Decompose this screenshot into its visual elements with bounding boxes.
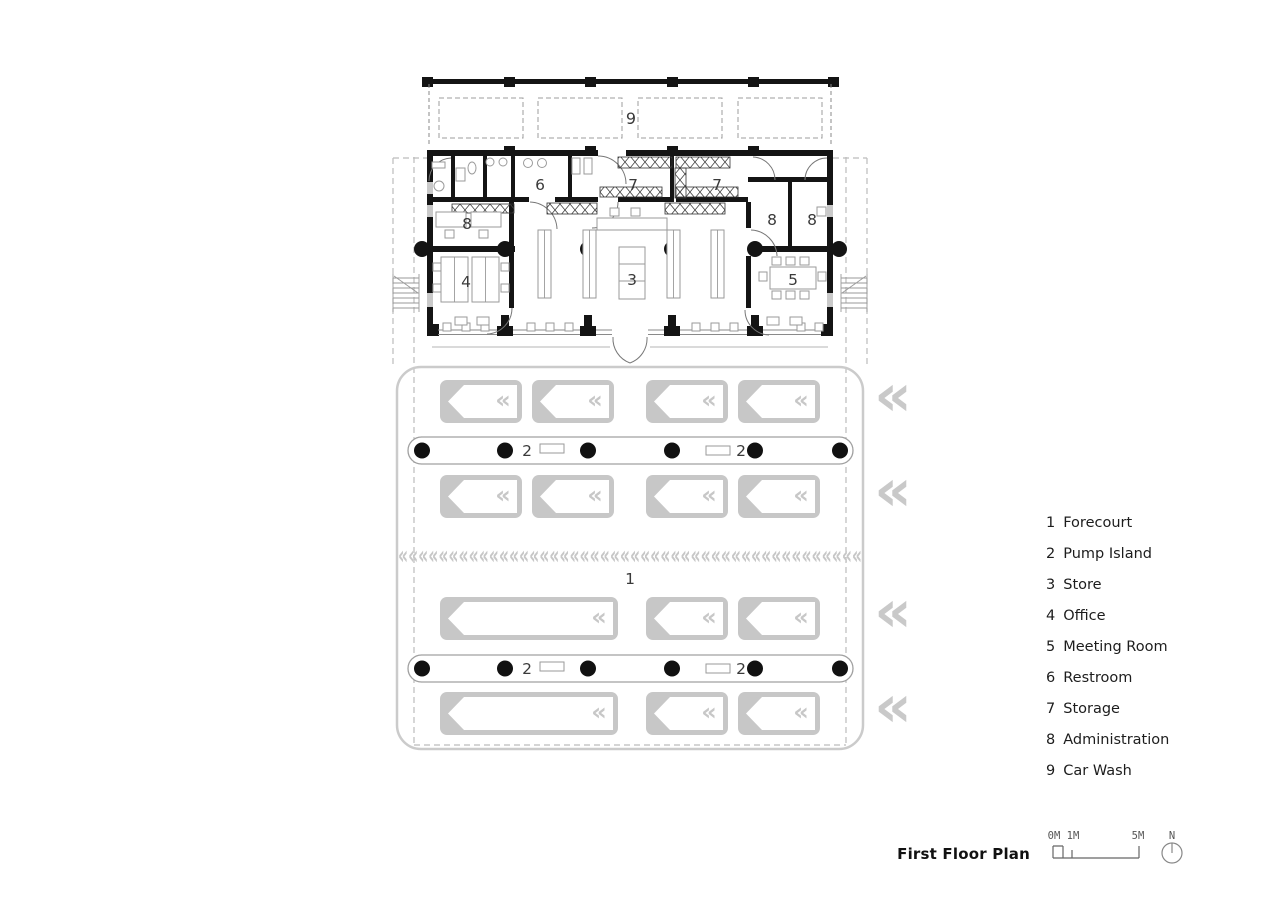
stall-arrow-icon: « xyxy=(701,698,717,726)
dispenser xyxy=(706,664,730,673)
legend-number: 5 xyxy=(1046,639,1055,655)
parking-stall: « xyxy=(646,380,728,423)
parking-stall: « xyxy=(440,597,618,640)
room-label-administration: 8 xyxy=(767,211,777,229)
pump-bollard xyxy=(832,661,848,677)
stall-arrow-icon: « xyxy=(495,386,511,414)
room-label-meeting-room: 5 xyxy=(788,271,798,289)
stall-arrow-icon: « xyxy=(591,603,607,631)
pump-island: 22 xyxy=(408,655,853,682)
pump-bollard xyxy=(497,661,513,677)
car-wash-bay xyxy=(738,98,822,138)
dispenser xyxy=(540,444,564,453)
floor-plan-page: 9 xyxy=(0,0,1280,904)
legend-number: 2 xyxy=(1046,546,1055,562)
legend: 1 Forecourt 2 Pump Island 3 Store 4 Offi… xyxy=(1046,507,1169,786)
parking-stall: « xyxy=(646,597,728,640)
legend-item-pump-island: 2 Pump Island xyxy=(1046,538,1169,569)
north-label: N xyxy=(1169,830,1175,842)
dispenser xyxy=(706,446,730,455)
scale-bar xyxy=(1053,846,1139,858)
column xyxy=(414,241,430,257)
car-wash-bay xyxy=(638,98,722,138)
legend-item-meeting-room: 5 Meeting Room xyxy=(1046,631,1169,662)
stall-arrow-icon: « xyxy=(587,386,603,414)
scale-label-5m: 5M xyxy=(1132,830,1145,842)
pump-bollard xyxy=(414,661,430,677)
stall-arrow-icon: « xyxy=(793,698,809,726)
scale-label-1m: 1M xyxy=(1067,830,1080,842)
legend-item-car-wash: 9 Car Wash xyxy=(1046,755,1169,786)
room-label-restroom: 6 xyxy=(535,176,545,194)
column xyxy=(497,241,513,257)
pump-island: 22 xyxy=(408,437,853,464)
legend-item-forecourt: 1 Forecourt xyxy=(1046,507,1169,538)
scale-label-0m: 0M xyxy=(1048,830,1061,842)
parking-stall: « xyxy=(440,475,522,518)
legend-number: 6 xyxy=(1046,670,1055,686)
room-label-pump-island: 2 xyxy=(736,660,746,678)
legend-item-administration: 8 Administration xyxy=(1046,724,1169,755)
column xyxy=(831,241,847,257)
stall-arrow-icon: « xyxy=(793,603,809,631)
parking-stall: « xyxy=(738,475,820,518)
car-wash-bay xyxy=(439,98,523,138)
car-wash-zone: 9 xyxy=(422,77,839,156)
parking-stall: « xyxy=(738,692,820,735)
entrance-door-leaf xyxy=(630,337,647,363)
legend-number: 8 xyxy=(1046,732,1055,748)
legend-label: Office xyxy=(1063,608,1105,624)
pump-bollard xyxy=(832,443,848,459)
entry-arrow-icon: « xyxy=(874,361,911,429)
stall-arrow-icon: « xyxy=(701,603,717,631)
legend-label: Pump Island xyxy=(1063,546,1152,562)
stall-arrow-icon: « xyxy=(793,386,809,414)
legend-label: Forecourt xyxy=(1063,515,1132,531)
entry-arrow-icon: « xyxy=(874,672,911,740)
pump-bollard xyxy=(580,443,596,459)
legend-number: 3 xyxy=(1046,577,1055,593)
forecourt: «««««««««««««« 2222 ««««««««««««««««««««… xyxy=(397,361,912,749)
column xyxy=(747,241,763,257)
room-label-forecourt: 1 xyxy=(625,570,635,588)
stall-arrow-icon: « xyxy=(793,481,809,509)
stall-arrow-icon: « xyxy=(587,481,603,509)
room-label-pump-island: 2 xyxy=(522,660,532,678)
legend-item-restroom: 6 Restroom xyxy=(1046,662,1169,693)
room-label-administration: 8 xyxy=(462,215,472,233)
legend-label: Restroom xyxy=(1063,670,1132,686)
parking-stall: « xyxy=(532,475,614,518)
plan-title: First Floor Plan xyxy=(830,845,1030,863)
room-label-storage: 7 xyxy=(712,176,722,194)
pump-bollard xyxy=(664,661,680,677)
room-label-pump-island: 2 xyxy=(736,442,746,460)
room-label-office: 4 xyxy=(461,273,471,291)
pump-bollard xyxy=(747,443,763,459)
legend-number: 4 xyxy=(1046,608,1055,624)
legend-number: 9 xyxy=(1046,763,1055,779)
stall-arrow-icon: « xyxy=(701,386,717,414)
entry-arrow-icon: « xyxy=(874,577,911,645)
car-wash-bay xyxy=(538,98,622,138)
legend-label: Administration xyxy=(1063,732,1169,748)
entry-arrow-icon: « xyxy=(874,456,911,524)
legend-label: Meeting Room xyxy=(1063,639,1167,655)
room-label-administration: 8 xyxy=(807,211,817,229)
pump-bollard xyxy=(580,661,596,677)
parking-stall: « xyxy=(738,380,820,423)
stall-arrow-icon: « xyxy=(591,698,607,726)
pump-bollard xyxy=(414,443,430,459)
dispenser xyxy=(540,662,564,671)
pump-bollard xyxy=(664,443,680,459)
stall-arrow-icon: « xyxy=(701,481,717,509)
room-label-pump-island: 2 xyxy=(522,442,532,460)
legend-number: 1 xyxy=(1046,515,1055,531)
legend-label: Car Wash xyxy=(1063,763,1132,779)
entrance-door-leaf xyxy=(613,337,630,363)
traffic-flow-chevrons: ««««««««««««««««««««««««««««««««««««««««… xyxy=(398,541,862,571)
legend-number: 7 xyxy=(1046,701,1055,717)
titleblock-graphics: 0M 1M 5M N xyxy=(1048,830,1182,863)
stall-arrow-icon: « xyxy=(495,481,511,509)
pump-bollard xyxy=(497,443,513,459)
legend-label: Store xyxy=(1063,577,1101,593)
legend-item-storage: 7 Storage xyxy=(1046,693,1169,724)
legend-item-store: 3 Store xyxy=(1046,569,1169,600)
parking-stall: « xyxy=(646,692,728,735)
legend-item-office: 4 Office xyxy=(1046,600,1169,631)
parking-stall: « xyxy=(646,475,728,518)
parking-stall: « xyxy=(532,380,614,423)
parking-stall: « xyxy=(738,597,820,640)
pump-bollard xyxy=(747,661,763,677)
storage-shelving xyxy=(452,157,738,214)
room-label-car-wash: 9 xyxy=(626,109,636,128)
legend-label: Storage xyxy=(1063,701,1120,717)
room-label-store: 3 xyxy=(627,271,637,289)
parking-stall: « xyxy=(440,380,522,423)
room-label-storage: 7 xyxy=(628,176,638,194)
parking-stall: « xyxy=(440,692,618,735)
